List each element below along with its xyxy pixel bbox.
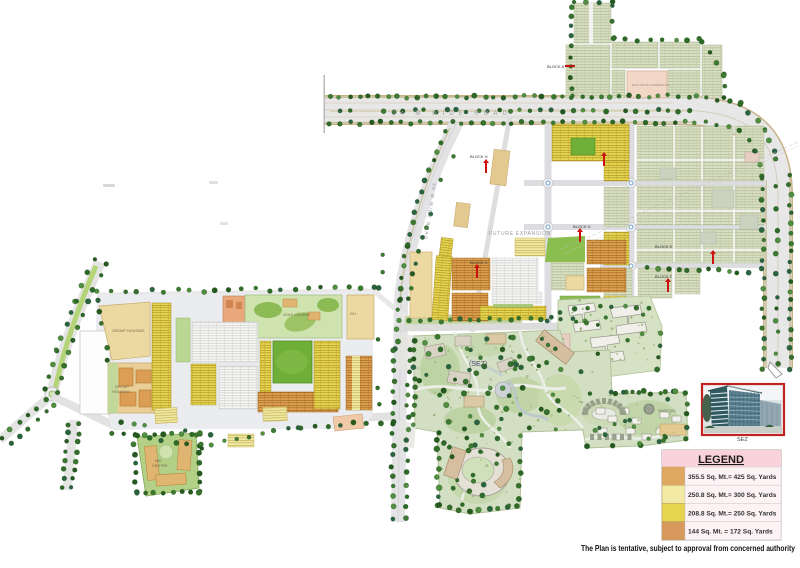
svg-text:GOLF COURSE: GOLF COURSE bbox=[283, 313, 311, 317]
svg-text:(SEZ): (SEZ) bbox=[469, 361, 487, 368]
svg-text:SEZ: SEZ bbox=[737, 437, 748, 443]
svg-text:BLOCK H: BLOCK H bbox=[470, 154, 488, 159]
svg-text:The Plan is tentative, subject: The Plan is tentative, subject to approv… bbox=[581, 544, 795, 553]
svg-text:GROUP: GROUP bbox=[115, 385, 129, 389]
svg-text:208.8 Sq. Mt.= 250 Sq. Yards: 208.8 Sq. Mt.= 250 Sq. Yards bbox=[688, 510, 777, 517]
svg-text:144 Sq. Mt. = 172 Sq. Yards: 144 Sq. Mt. = 172 Sq. Yards bbox=[688, 529, 773, 536]
svg-text:SHEETAL: SHEETAL bbox=[658, 408, 677, 413]
svg-text:355.5 Sq. Mt.= 425 Sq. Yards: 355.5 Sq. Mt.= 425 Sq. Yards bbox=[688, 474, 777, 481]
svg-text:BLOCK A: BLOCK A bbox=[547, 64, 564, 69]
svg-text:GROUP HOUSING: GROUP HOUSING bbox=[112, 329, 145, 333]
svg-text:HOUSING: HOUSING bbox=[112, 390, 130, 394]
svg-text:BLOCK D: BLOCK D bbox=[573, 224, 591, 229]
svg-text:BLOCK C: BLOCK C bbox=[470, 260, 488, 265]
svg-text:24 M WIDE ROAD: 24 M WIDE ROAD bbox=[392, 111, 512, 117]
svg-text:LEGEND: LEGEND bbox=[698, 454, 744, 466]
svg-text:MID: MID bbox=[155, 459, 162, 463]
svg-text:FUTURE EXPANSION: FUTURE EXPANSION bbox=[489, 231, 551, 237]
svg-text:EXCLUSIVE COMMERCIAL: EXCLUSIVE COMMERCIAL bbox=[632, 83, 670, 87]
svg-text:CENTRE: CENTRE bbox=[152, 464, 168, 468]
svg-text:250.8 Sq. Mt.= 300 Sq. Yards: 250.8 Sq. Mt.= 300 Sq. Yards bbox=[688, 492, 777, 499]
svg-text:GH: GH bbox=[350, 312, 356, 316]
svg-text:BLOCK E: BLOCK E bbox=[655, 244, 673, 249]
svg-text:BLOCK F: BLOCK F bbox=[655, 274, 673, 279]
